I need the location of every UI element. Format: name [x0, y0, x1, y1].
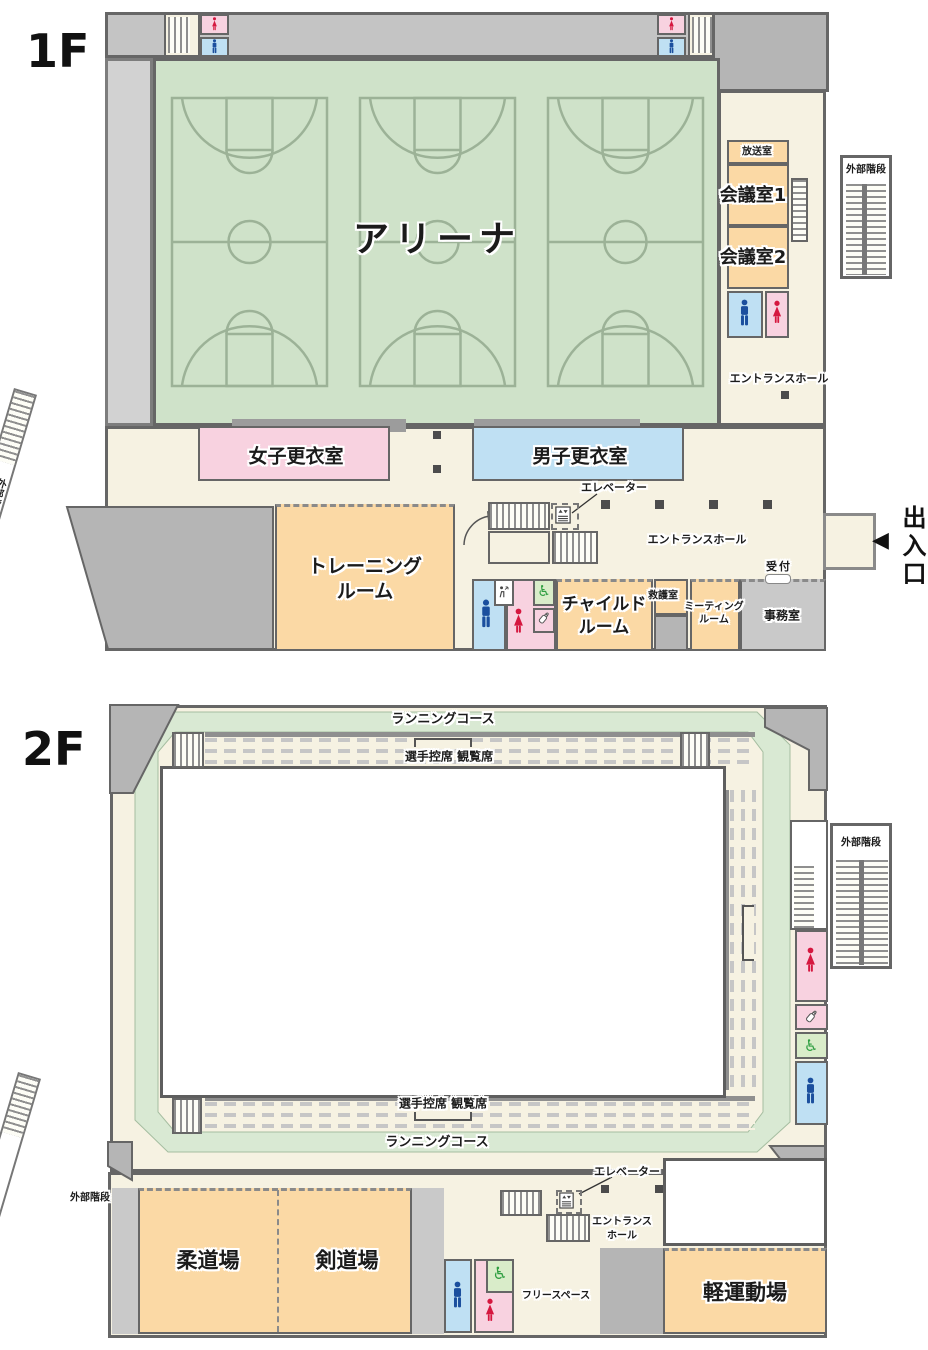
- stair-landing-right: [790, 820, 828, 930]
- male-toilet-icon: [738, 299, 751, 329]
- building-mass-2f-left-junction: [108, 1142, 132, 1180]
- entrance-hall-2f-label-2: ホール: [607, 1231, 637, 1242]
- stair-rail: [859, 860, 864, 965]
- office-label: 事務室: [764, 609, 800, 622]
- gray-block-bottom: [600, 1248, 663, 1334]
- men-locker-label: 男子更衣室: [532, 447, 627, 468]
- broadcast-label: 放送室: [742, 147, 772, 158]
- stairs-2f-entrance-upper: [500, 1190, 542, 1216]
- female-toilet-icon: [804, 947, 817, 977]
- kendo-label: 剣道場: [316, 1249, 379, 1272]
- column: [601, 1185, 609, 1193]
- dojo-divider: [277, 1190, 279, 1332]
- arena-label: アリーナ: [353, 220, 521, 260]
- column: [655, 500, 664, 509]
- column: [433, 431, 441, 439]
- entrance-hall-lower-label: エントランスホール: [648, 534, 747, 546]
- meeting1-label: 会議室1: [720, 186, 787, 206]
- stairs-2f-entrance-lower: [546, 1214, 590, 1242]
- column: [601, 500, 610, 509]
- free-space-label: フリースペース: [522, 1291, 590, 1302]
- seat-bar-top: [205, 732, 755, 737]
- elevator-label-1f: エレベーター: [581, 482, 647, 494]
- seat-bracket-right: [742, 905, 754, 961]
- arena-void: [160, 766, 726, 1098]
- wheelchair-icon: ♿: [802, 1036, 820, 1055]
- void-above-light-gym: [663, 1158, 827, 1246]
- female-toilet-icon: [484, 1298, 496, 1326]
- building-mass-bottom-left: [67, 507, 273, 649]
- stairs-center-landing: [488, 531, 550, 564]
- floor1-label: 1F: [26, 24, 89, 78]
- seats-bottom-label: 選手控席 観覧席: [399, 1097, 487, 1110]
- male-toilet-icon: [479, 599, 493, 631]
- stairs-2f-top-left: [172, 732, 204, 768]
- entrance-vestibule: [823, 513, 876, 570]
- baby-bottle-icon: [803, 1009, 819, 1029]
- seat-bracket-top: [414, 738, 472, 747]
- training-label-1: トレーニング: [308, 557, 422, 578]
- service-block: [654, 615, 688, 651]
- floorplan-page: 1F アリー: [0, 0, 928, 1350]
- elevator-label-2f: エレベーター: [594, 1166, 660, 1178]
- male-toilet-icon: [804, 1077, 817, 1107]
- exterior-stairs-right-label: 外部階段: [846, 165, 886, 176]
- male-toilet-icon: [668, 39, 675, 55]
- room-child: [556, 579, 653, 651]
- elevator-icon: [555, 506, 571, 528]
- column: [655, 1185, 663, 1193]
- exterior-stairs-2f-right-label: 外部階段: [841, 838, 881, 849]
- entrance-arrow-icon: ◀: [872, 528, 889, 553]
- stairs-2f-bottom-left: [172, 1098, 202, 1134]
- male-toilet-icon: [451, 1281, 464, 1311]
- wheelchair-icon: ♿: [535, 582, 553, 600]
- judo-label: 柔道場: [177, 1249, 240, 1272]
- gray-strip-right: [412, 1188, 444, 1334]
- female-toilet-icon: [668, 17, 675, 33]
- meeting-small-label-1: ミーティング: [684, 602, 743, 613]
- stairs-2f-top-right: [680, 732, 710, 768]
- female-toilet-icon: [512, 608, 525, 638]
- stairs-center-upper: [488, 502, 550, 530]
- male-toilet-icon: [211, 39, 218, 55]
- training-label-2: ルーム: [337, 582, 393, 603]
- reception-counter: [765, 574, 791, 584]
- floor2-label: 2F: [22, 722, 85, 776]
- seat-bracket-bottom: [414, 1112, 472, 1121]
- running-course-bottom-label: ランニングコース: [385, 1136, 488, 1150]
- stairs-hatch: [794, 866, 814, 928]
- column: [781, 391, 789, 399]
- walking-person-icon: [497, 584, 511, 603]
- gray-strip-left: [112, 1188, 138, 1334]
- first-aid-label: 救護室: [648, 591, 678, 602]
- elevator-icon: [559, 1192, 574, 1213]
- reception-label: 受付: [766, 561, 792, 573]
- baby-bottle-icon: [536, 611, 551, 630]
- women-locker-label: 女子更衣室: [248, 447, 343, 468]
- running-course-top-label: ランニングコース: [391, 713, 494, 727]
- seats-top-label: 選手控席 観覧席: [405, 750, 493, 763]
- meeting-small-label-2: ルーム: [699, 615, 729, 626]
- exit-label: 出入口: [895, 505, 928, 589]
- child-room-label-2: ルーム: [579, 619, 630, 638]
- meeting2-label: 会議室2: [720, 248, 787, 268]
- entrance-hall-upper-label: エントランスホール: [730, 373, 829, 385]
- female-toilet-icon: [211, 17, 218, 33]
- stair-direction-arrow: [464, 516, 490, 545]
- exterior-stairs-2f-left-label: 外部階段: [70, 1193, 110, 1204]
- column: [709, 500, 718, 509]
- column: [763, 500, 772, 509]
- wheelchair-icon: ♿: [491, 1264, 509, 1284]
- female-toilet-icon: [771, 300, 783, 328]
- entrance-hall-2f-label-1: エントランス: [592, 1217, 652, 1228]
- light-gym-label: 軽運動場: [703, 1281, 787, 1304]
- child-room-label-1: チャイルド: [562, 596, 647, 615]
- column: [433, 465, 441, 473]
- stairs-center-lower: [552, 531, 598, 564]
